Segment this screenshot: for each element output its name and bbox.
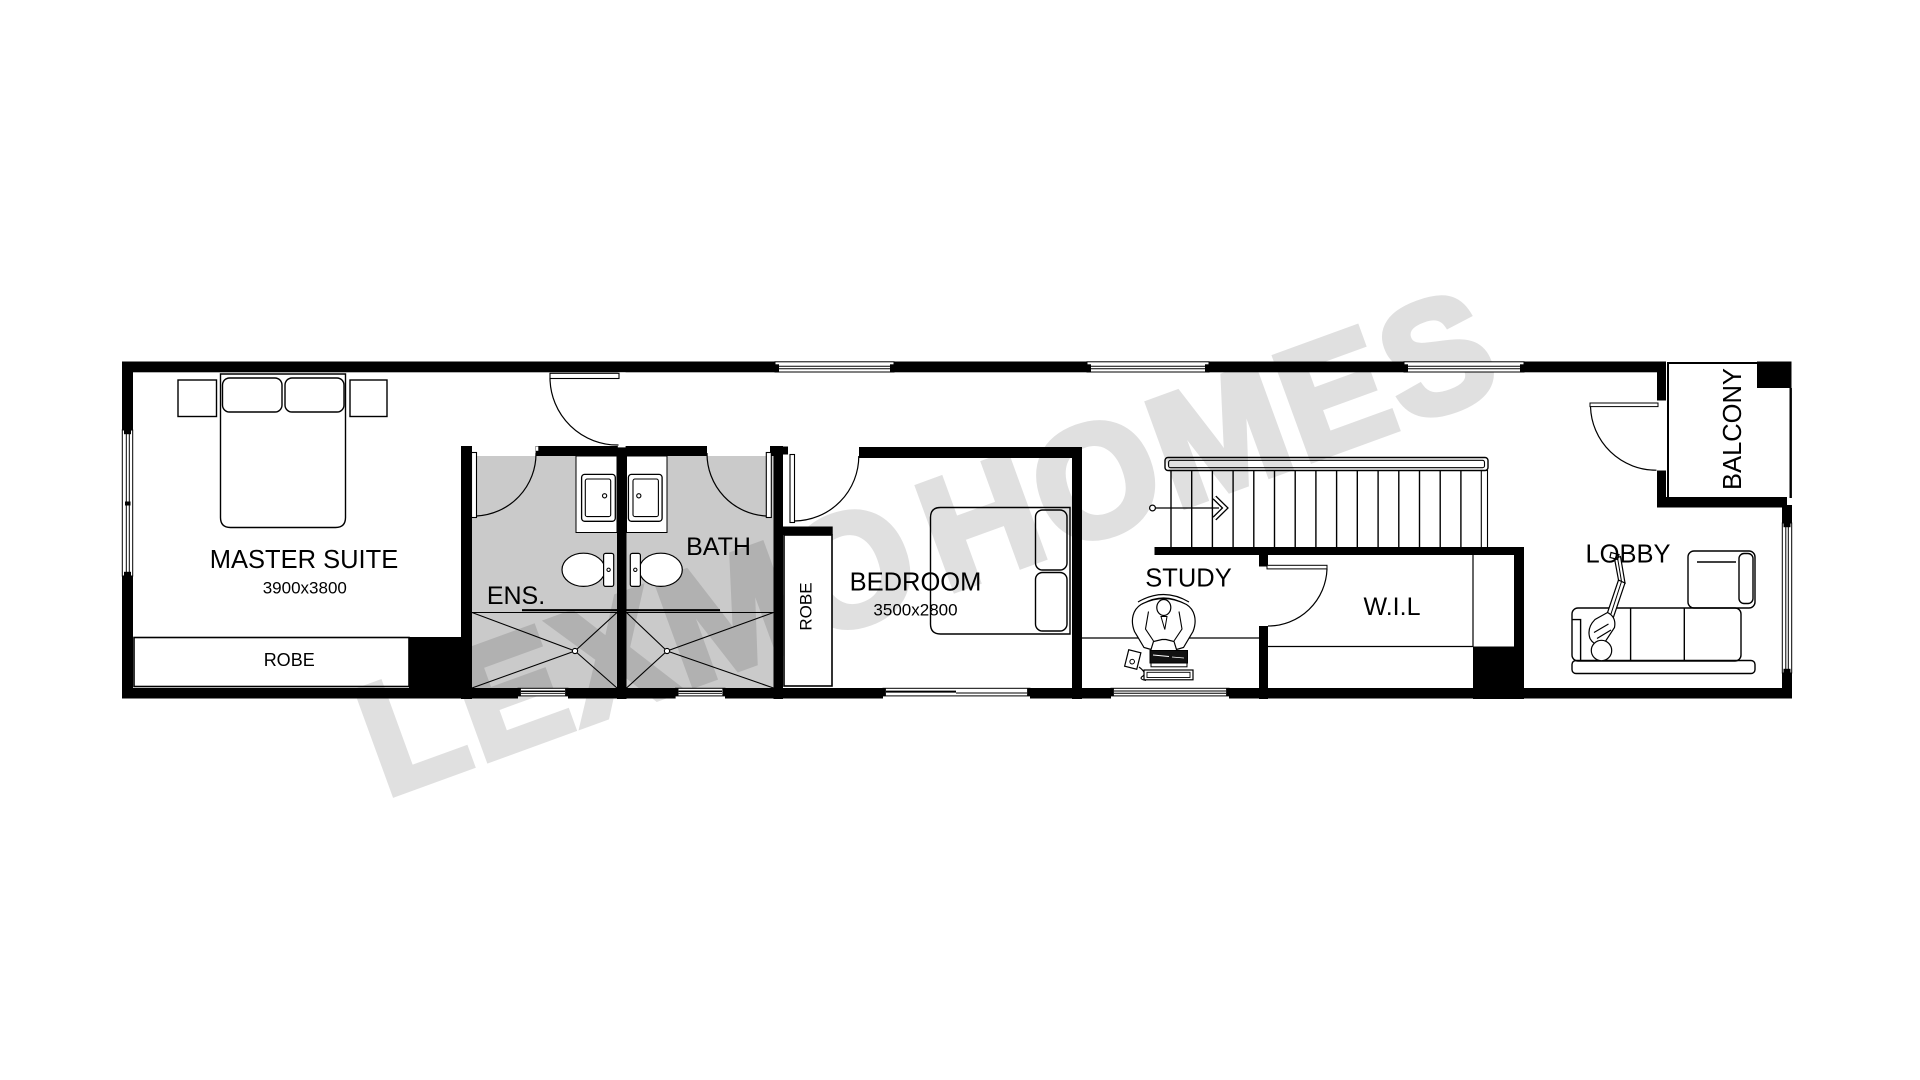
svg-text:3900x3800: 3900x3800	[263, 579, 347, 598]
svg-text:BATH: BATH	[686, 533, 751, 561]
svg-text:STUDY: STUDY	[1145, 565, 1231, 593]
svg-text:ROBE: ROBE	[264, 650, 315, 670]
svg-text:ROBE: ROBE	[797, 582, 816, 630]
svg-text:W.I.L: W.I.L	[1364, 593, 1421, 621]
svg-text:ENS.: ENS.	[487, 582, 545, 610]
svg-text:MASTER SUITE: MASTER SUITE	[210, 546, 398, 574]
svg-text:BEDROOM: BEDROOM	[850, 569, 982, 597]
svg-text:LOBBY: LOBBY	[1585, 541, 1670, 569]
svg-text:BALCONY: BALCONY	[1719, 368, 1747, 490]
svg-text:3500x2800: 3500x2800	[873, 601, 957, 620]
